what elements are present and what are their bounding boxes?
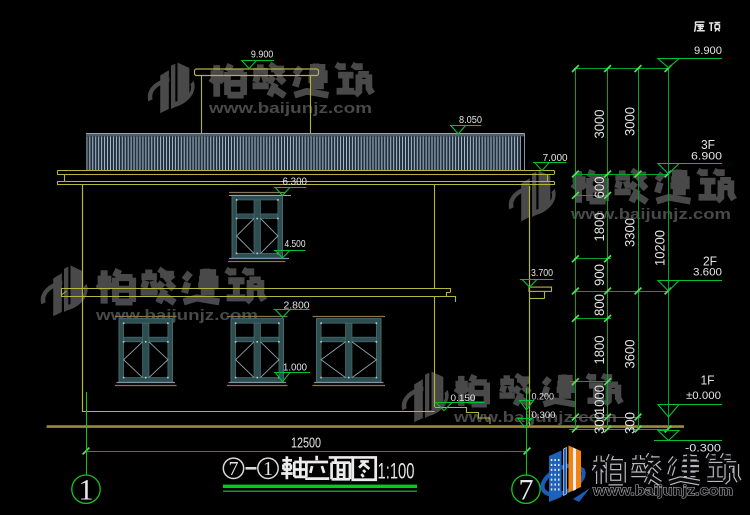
svg-text:3000: 3000 <box>623 107 638 136</box>
svg-text:8.050: 8.050 <box>459 115 482 126</box>
svg-text:3.700: 3.700 <box>531 267 553 279</box>
svg-text:1: 1 <box>79 474 94 507</box>
svg-text:1.000: 1.000 <box>283 361 307 373</box>
svg-text:www.baijunjz.com: www.baijunjz.com <box>592 483 733 498</box>
svg-text:800: 800 <box>592 294 607 316</box>
svg-text:4.500: 4.500 <box>285 238 306 250</box>
svg-text:-0.300: -0.300 <box>685 443 721 455</box>
svg-text:3600: 3600 <box>623 340 638 369</box>
svg-text:1000: 1000 <box>592 385 607 414</box>
svg-text:2.800: 2.800 <box>284 299 310 311</box>
svg-text:6.900: 6.900 <box>691 150 722 162</box>
svg-text:0.150: 0.150 <box>451 393 476 404</box>
svg-text:600: 600 <box>592 177 607 199</box>
svg-text:www.baijunjz.com: www.baijunjz.com <box>208 101 372 117</box>
svg-text:3.600: 3.600 <box>693 267 722 279</box>
svg-text:1F: 1F <box>701 373 715 388</box>
svg-text:9.900: 9.900 <box>251 50 274 61</box>
svg-text:1: 1 <box>263 458 273 480</box>
svg-text:±0.000: ±0.000 <box>686 390 721 402</box>
svg-text:300: 300 <box>623 412 638 434</box>
svg-text:9.900: 9.900 <box>694 45 722 57</box>
svg-text:900: 900 <box>592 264 607 286</box>
svg-text:1800: 1800 <box>592 213 607 242</box>
svg-text:6.300: 6.300 <box>283 176 308 188</box>
svg-text:1800: 1800 <box>592 336 607 365</box>
svg-text:12500: 12500 <box>291 435 321 451</box>
svg-text:1:100: 1:100 <box>378 458 415 483</box>
svg-text:10200: 10200 <box>653 230 668 266</box>
svg-text:7: 7 <box>229 458 239 480</box>
svg-text:300: 300 <box>592 412 607 434</box>
svg-text:0.300: 0.300 <box>532 410 556 421</box>
svg-text:3000: 3000 <box>592 110 607 139</box>
svg-text:7: 7 <box>519 474 534 507</box>
svg-text:0.200: 0.200 <box>532 392 555 403</box>
svg-text:3300: 3300 <box>623 218 638 247</box>
svg-text:7.000: 7.000 <box>543 153 568 164</box>
